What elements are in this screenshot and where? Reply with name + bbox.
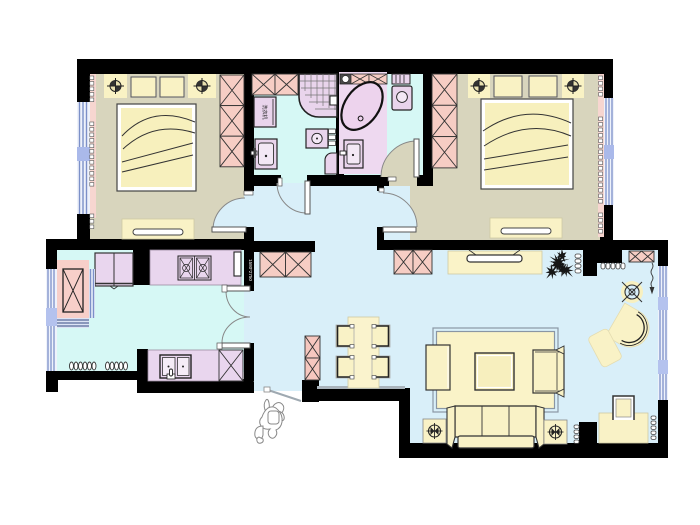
svg-text:1580*2750: 1580*2750 xyxy=(248,259,253,281)
svg-text:洗衣机: 洗衣机 xyxy=(261,104,268,119)
